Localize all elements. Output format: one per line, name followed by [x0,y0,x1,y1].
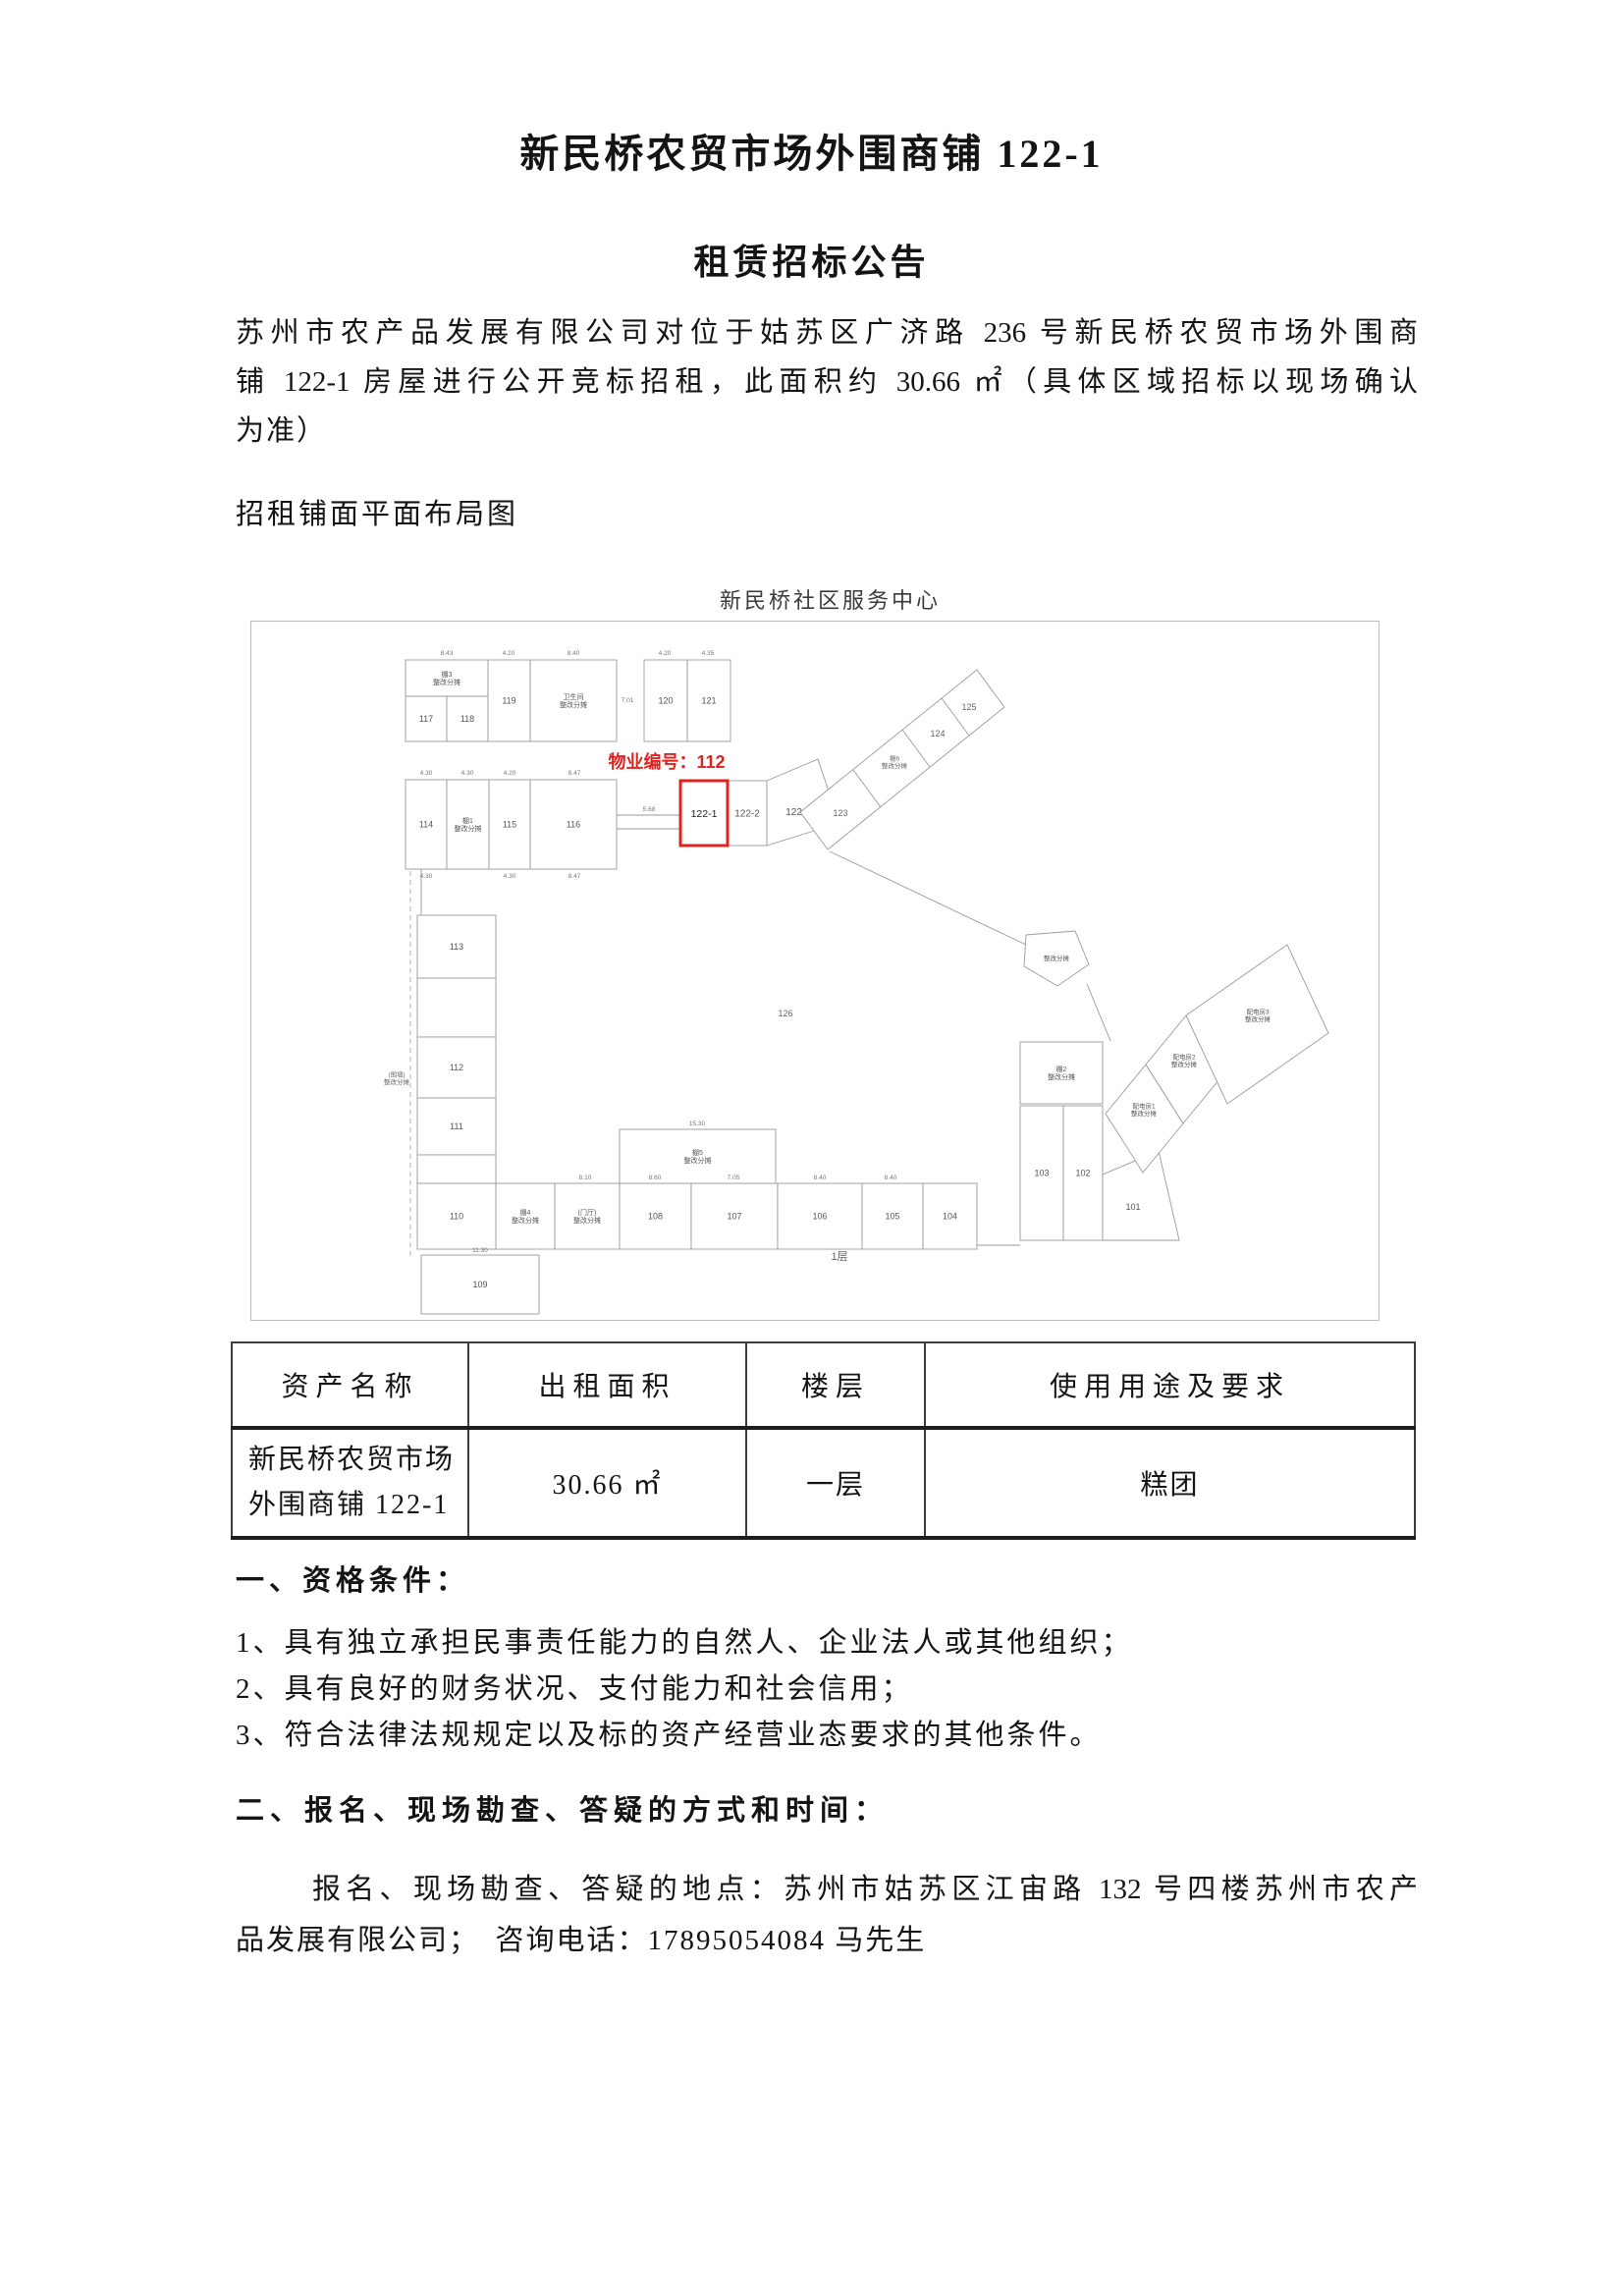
plan-room [417,978,496,1037]
col-header-asset-name: 资产名称 [232,1342,468,1428]
plan-room-label: 112 [450,1063,463,1072]
col-header-area: 出租面积 [468,1342,746,1428]
plan-room-label: 122-2 [734,809,760,820]
asset-info-table: 资产名称 出租面积 楼层 使用用途及要求 新民桥农贸市场外围商铺 122-1 3… [231,1341,1416,1540]
plan-title: 新民桥社区服务中心 [720,583,941,615]
plan-dimension-label: 4.30 [504,873,516,880]
plan-room-label: 109 [472,1280,487,1289]
plan-room [800,670,1004,849]
plan-area-label: 126 [778,1009,792,1018]
plan-dimension-label: 8.60 [649,1175,662,1181]
contact-line: 品发展有限公司； 咨询电话：17895054084 马先生 [236,1915,1418,1966]
cell-usage: 糕团 [925,1428,1415,1538]
plan-room-label: 113 [450,942,463,952]
plan-dimension-label: 5.68 [643,806,656,813]
plan-room-label: 118 [460,714,474,724]
plan-room-label: 101 [1125,1202,1140,1212]
cell-floor: 一层 [746,1428,925,1538]
plan-room-label: 整改分摊 [1044,954,1070,962]
plan-room [417,1155,496,1183]
intro-line: 为准） [236,407,1418,456]
plan-room-label: 配电房2整改分摊 [1171,1052,1198,1067]
plan-room-label: 116 [567,820,580,830]
plan-dimension-label: 4.35 [702,650,715,657]
plan-room-label: 102 [1075,1169,1090,1178]
plan-dimension-label: 4.30 [461,770,474,777]
plan-room-label: 119 [502,696,515,706]
plan-room-label: 111 [450,1121,463,1131]
plan-wall-line [1087,984,1110,1041]
plan-dimension-label: 4.30 [420,873,433,880]
floor-plan-drawing: 棚3整改分摊117118119卫生间整改分摊120121114棚1整改分摊115… [250,621,1380,1321]
highlighted-unit-label: 122-1 [691,808,718,820]
plan-area-label: (围墙)整改分摊 [384,1069,410,1085]
section-1-title: 一、资格条件： [236,1558,469,1599]
plan-dimension-label: 8.40 [568,650,580,657]
plan-area-label: 124 [930,729,945,738]
contact-paragraph: 报名、现场勘查、答疑的地点：苏州市姑苏区江宙路 132 号四楼苏州市农产品发展有… [236,1864,1418,1966]
plan-area-label: 125 [961,702,976,712]
plan-room-label: 121 [701,696,716,706]
plan-room-label: 103 [1034,1169,1049,1178]
plan-caption: 招租铺面平面布局图 [236,491,518,532]
col-header-usage: 使用用途及要求 [925,1342,1415,1428]
plan-dimension-label: 8.40 [885,1175,897,1181]
plan-wall-line [830,851,1026,945]
plan-room-label: 114 [419,820,433,830]
plan-room-label: 115 [503,820,516,830]
plan-room-label: 卫生间整改分摊 [560,692,587,709]
cell-area: 30.66 ㎡ [468,1428,746,1538]
condition-item: 2、具有良好的财务状况、支付能力和社会信用； [236,1667,1418,1713]
plan-dimension-label: 8.40 [814,1175,827,1181]
floor-plan-figure: 新民桥社区服务中心 棚3整改分摊117118119卫生间整改分摊12012111… [250,583,1380,1322]
plan-dimension-label: 4.20 [659,650,672,657]
table-row: 新民桥农贸市场外围商铺 122-1 30.66 ㎡ 一层 糕团 [232,1428,1415,1538]
page-subtitle: 租赁招标公告 [0,234,1623,285]
plan-dimension-label: 4.30 [420,770,433,777]
col-header-floor: 楼层 [746,1342,925,1428]
plan-dimension-label: 7.01 [622,697,634,704]
condition-item: 3、符合法律法规规定以及标的资产经营业态要求的其他条件。 [236,1713,1418,1759]
document-page: 新民桥农贸市场外围商铺 122-1 租赁招标公告 苏州市农产品发展有限公司对位于… [0,0,1623,2296]
contact-line: 报名、现场勘查、答疑的地点：苏州市姑苏区江宙路 132 号四楼苏州市农产 [236,1864,1418,1915]
plan-room-label: 107 [727,1212,741,1222]
plan-room-label: 117 [419,714,433,724]
plan-dimension-label: 4.20 [503,650,515,657]
plan-dimension-label: 4.20 [504,770,516,777]
intro-paragraph: 苏州市农产品发展有限公司对位于姑苏区广济路 236 号新民桥农贸市场外围商铺 1… [236,308,1418,456]
plan-room-label: 105 [885,1212,899,1222]
section-1-items: 1、具有独立承担民事责任能力的自然人、企业法人或其他组织；2、具有良好的财务状况… [236,1620,1418,1759]
plan-room-label: 106 [812,1212,827,1222]
plan-room-label: 104 [943,1212,957,1222]
page-title: 新民桥农贸市场外围商铺 122-1 [0,122,1623,179]
plan-room-label: 配电房3整改分摊 [1245,1007,1271,1022]
plan-area-label: 1层 [831,1250,847,1263]
property-number-callout: 物业编号：112 [608,751,725,772]
plan-dimension-label: 8.47 [568,770,581,777]
plan-dimension-label: 11.30 [472,1247,488,1254]
condition-item: 1、具有独立承担民事责任能力的自然人、企业法人或其他组织； [236,1620,1418,1667]
plan-dimension-label: 8.10 [579,1175,592,1181]
section-2-title: 二、报名、现场勘查、答疑的方式和时间： [236,1787,889,1829]
table-header-row: 资产名称 出租面积 楼层 使用用途及要求 [232,1342,1415,1428]
intro-line: 铺 122-1 房屋进行公开竞标招租，此面积约 30.66 ㎡（具体区域招标以现… [236,357,1418,407]
plan-dimension-label: 7.05 [728,1175,740,1181]
cell-asset-name: 新民桥农贸市场外围商铺 122-1 [232,1428,468,1538]
plan-dimension-label: 8.47 [568,873,581,880]
plan-room-label: 120 [658,696,673,706]
plan-room-label: 110 [450,1212,463,1222]
plan-dimension-label: 8.43 [441,650,454,657]
plan-room-label: 108 [648,1212,663,1222]
plan-room-label: 配电房1整改分摊 [1131,1101,1158,1117]
plan-area-label: 123 [833,808,847,818]
plan-dimension-label: 15.30 [689,1121,706,1127]
intro-line: 苏州市农产品发展有限公司对位于姑苏区广济路 236 号新民桥农贸市场外围商 [236,308,1418,357]
